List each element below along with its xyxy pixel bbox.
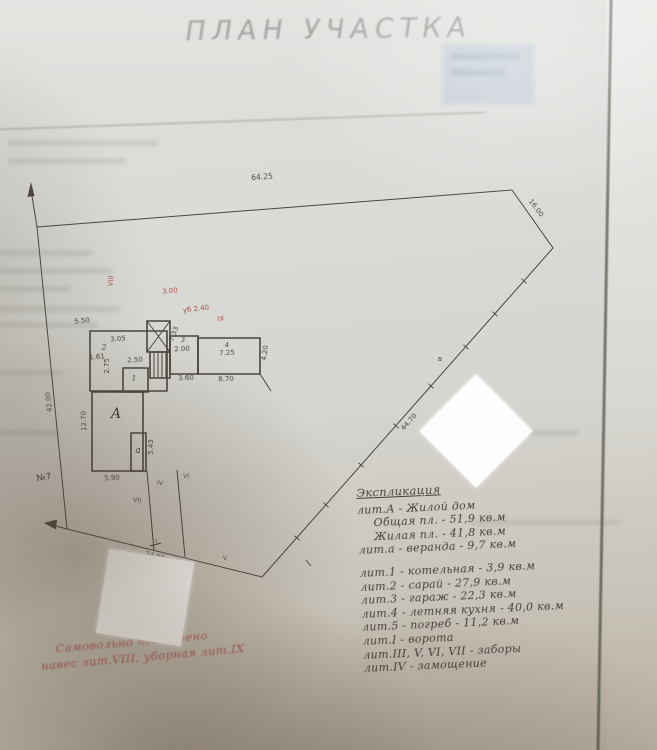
building-details [147, 321, 271, 557]
kitchen-connector [260, 374, 271, 391]
cellar-steps-hatch [154, 352, 166, 378]
kitchen-outline [198, 338, 260, 374]
buildings-group [90, 321, 260, 471]
gate-mark [150, 543, 161, 546]
explication-block: Экспликация лит.А - Жилой домОбщая пл. -… [356, 475, 649, 676]
boiler-outline [123, 368, 148, 392]
explication-list: лит.А - Жилой домОбщая пл. - 51,9 кв.мЖи… [357, 491, 649, 675]
house-outline [92, 392, 143, 471]
boundary-top [37, 190, 553, 248]
site-plan-photo: ПЛАН УЧАСТКА [0, 0, 657, 750]
garage-outline [170, 336, 198, 374]
redaction-square [96, 549, 194, 646]
west-arrow-head [44, 520, 57, 530]
yard-path-left [147, 471, 154, 551]
north-arrow-head [28, 182, 35, 197]
boundary-bottom-left [37, 227, 262, 577]
page-margin-strip [607, 0, 657, 750]
yard-path-right [177, 470, 185, 557]
